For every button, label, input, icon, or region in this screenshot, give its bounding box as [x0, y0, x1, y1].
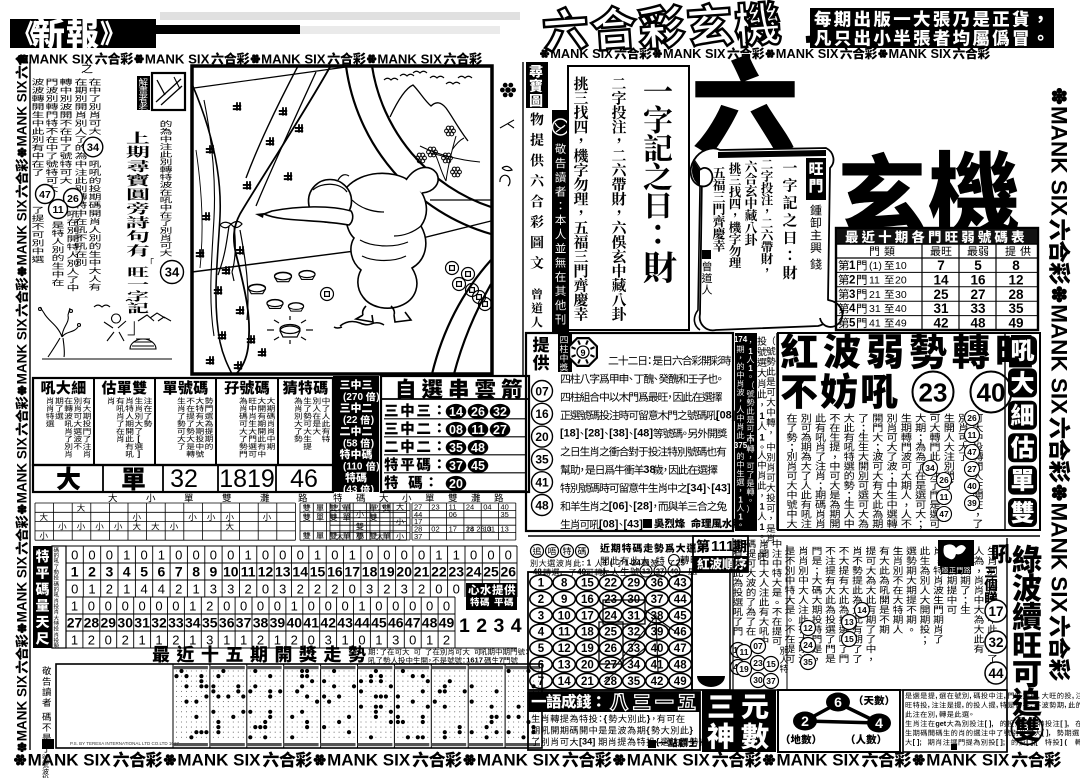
svg-text:8: 8 [192, 563, 200, 579]
svg-text:45: 45 [471, 459, 485, 473]
svg-text:40: 40 [967, 481, 977, 491]
svg-text:47: 47 [674, 643, 687, 655]
svg-text:}: } [647, 714, 651, 724]
svg-text:7: 7 [538, 676, 544, 688]
svg-text:3: 3 [366, 581, 373, 596]
svg-text:46: 46 [674, 627, 687, 639]
svg-text:10: 10 [223, 563, 239, 579]
svg-text:07: 07 [535, 384, 549, 398]
svg-text:1: 1 [223, 632, 230, 647]
svg-text:23: 23 [449, 563, 465, 579]
svg-text:,: , [1004, 691, 1006, 700]
svg-text:0: 0 [453, 581, 460, 596]
svg-text:1: 1 [71, 563, 79, 579]
svg-text:0: 0 [349, 581, 356, 596]
svg-text:0: 0 [308, 632, 315, 647]
svg-text:1: 1 [123, 547, 130, 562]
svg-text:9: 9 [580, 348, 585, 358]
svg-text:MANK SIX: MANK SIX [777, 751, 861, 770]
svg-text:,: , [928, 700, 930, 709]
svg-text:19: 19 [739, 664, 749, 674]
svg-text:1819: 1819 [219, 465, 275, 493]
svg-text:[28]: [28] [633, 501, 653, 513]
svg-text:0: 0 [308, 598, 315, 613]
svg-text:MANK SIX: MANK SIX [627, 751, 711, 770]
svg-text:38: 38 [253, 614, 269, 630]
svg-text:0: 0 [470, 547, 477, 562]
svg-text:}: } [689, 725, 693, 735]
svg-text:46: 46 [290, 465, 318, 493]
svg-text:37: 37 [766, 676, 776, 686]
svg-text:1: 1 [155, 632, 162, 647]
svg-text:P.S. BY TERESA INTERNATIONAL: P.S. BY TERESA INTERNATIONAL LTD CO.LTD … [70, 741, 179, 746]
svg-text:31: 31 [869, 303, 881, 315]
svg-text:,: , [935, 710, 937, 719]
svg-text:24: 24 [803, 640, 813, 650]
svg-text:32: 32 [170, 465, 198, 493]
svg-text:47: 47 [939, 509, 949, 519]
svg-text:0: 0 [138, 598, 145, 613]
svg-text:11: 11 [869, 274, 880, 286]
svg-text:32: 32 [151, 614, 167, 630]
svg-text:,: , [962, 700, 964, 709]
svg-text:0: 0 [274, 598, 281, 613]
svg-text:0: 0 [122, 598, 129, 613]
svg-text:3: 3 [849, 289, 855, 301]
svg-text:1: 1 [759, 432, 765, 443]
svg-text:8: 8 [561, 578, 568, 590]
svg-text:1: 1 [748, 347, 753, 356]
svg-text:41: 41 [869, 318, 881, 330]
svg-text:36: 36 [219, 614, 235, 630]
svg-text:35: 35 [803, 657, 813, 667]
svg-text:4: 4 [538, 627, 545, 639]
svg-text:2: 2 [538, 594, 544, 606]
svg-text:0: 0 [418, 547, 425, 562]
svg-text:0: 0 [210, 547, 217, 562]
svg-text:1: 1 [158, 547, 165, 562]
svg-text:,: , [1030, 700, 1032, 709]
svg-text:,: , [1064, 700, 1066, 709]
svg-text:07: 07 [753, 641, 763, 651]
svg-text:0: 0 [375, 598, 382, 613]
svg-text:40: 40 [895, 303, 907, 315]
svg-text:0: 0 [257, 598, 264, 613]
svg-text:MANK SIX: MANK SIX [15, 80, 30, 146]
svg-text:MANK SIX: MANK SIX [477, 751, 561, 770]
svg-text:23: 23 [753, 658, 763, 668]
svg-text:: 1: : 1 [582, 559, 592, 568]
svg-text:34: 34 [165, 265, 180, 280]
svg-text:MANK SIX: MANK SIX [663, 46, 726, 61]
svg-text:1: 1 [849, 260, 856, 272]
svg-text:26: 26 [939, 475, 949, 485]
svg-text:21: 21 [414, 563, 430, 579]
svg-text:(270: (270 [343, 392, 363, 403]
svg-text:30: 30 [895, 289, 907, 301]
svg-text:29: 29 [101, 614, 117, 630]
svg-text:get: get [935, 719, 946, 728]
svg-text:,: , [996, 700, 998, 709]
svg-text:0: 0 [227, 547, 234, 562]
svg-text:MANK SIX: MANK SIX [15, 437, 30, 503]
svg-text:3: 3 [227, 581, 234, 596]
svg-text:1: 1 [748, 364, 753, 373]
svg-text:48: 48 [970, 316, 986, 331]
svg-text:0: 0 [155, 598, 162, 613]
svg-text:25: 25 [483, 563, 499, 579]
svg-text:MANK SIX: MANK SIX [926, 751, 1010, 770]
svg-text:1: 1 [71, 632, 78, 647]
svg-text:0: 0 [88, 598, 95, 613]
svg-text:7: 7 [175, 563, 183, 579]
svg-text:[28]: [28] [585, 428, 605, 440]
svg-text:48: 48 [422, 614, 438, 630]
svg-text:,: , [970, 691, 972, 700]
svg-text:(22: (22 [343, 415, 358, 426]
svg-text:23: 23 [431, 502, 439, 511]
svg-text:9: 9 [561, 594, 567, 606]
svg-text:{: { [656, 737, 660, 747]
svg-text:5: 5 [140, 563, 148, 579]
svg-text:11: 11 [471, 423, 484, 437]
svg-text:1 2 3 4: 1 2 3 4 [459, 615, 522, 637]
svg-text:49: 49 [439, 614, 455, 630]
svg-text:0: 0 [392, 598, 399, 613]
svg-text:0: 0 [435, 581, 442, 596]
svg-text:46: 46 [388, 614, 404, 630]
svg-text:43: 43 [337, 614, 353, 630]
svg-text:37: 37 [236, 614, 252, 630]
svg-text:42: 42 [933, 316, 948, 331]
svg-text:18: 18 [362, 563, 378, 579]
svg-text:2: 2 [331, 581, 338, 596]
svg-text:[43]: [43] [711, 482, 731, 494]
svg-text:28: 28 [604, 676, 617, 688]
svg-text:17: 17 [449, 525, 457, 534]
svg-text:35: 35 [535, 453, 549, 467]
svg-text:0: 0 [297, 547, 304, 562]
svg-text:27: 27 [970, 287, 985, 302]
svg-text:3: 3 [401, 581, 408, 596]
svg-text:11: 11 [52, 204, 63, 216]
svg-text:0: 0 [140, 547, 147, 562]
svg-text:2: 2 [443, 632, 450, 647]
svg-text:31: 31 [933, 301, 949, 316]
svg-text:37: 37 [414, 532, 422, 541]
svg-text:0: 0 [279, 547, 286, 562]
svg-text:5: 5 [849, 318, 856, 330]
svg-text:4: 4 [158, 581, 165, 596]
svg-text:49: 49 [895, 318, 907, 330]
svg-text:[ ],: [ ], [985, 719, 994, 728]
svg-text:MANK SIX: MANK SIX [1047, 106, 1072, 216]
svg-text:0: 0 [105, 632, 112, 647]
svg-text:0: 0 [505, 547, 512, 562]
svg-text:2: 2 [849, 274, 855, 286]
svg-text:1: 1 [314, 547, 321, 562]
svg-text:0: 0 [88, 547, 95, 562]
svg-text:0: 0 [240, 598, 247, 613]
svg-text:,: , [935, 691, 937, 700]
svg-text:MANK SIX: MANK SIX [776, 46, 839, 61]
svg-text:[34]: [34] [687, 482, 707, 494]
svg-text:20: 20 [581, 660, 594, 672]
svg-text:1: 1 [189, 632, 196, 647]
svg-text:(43: (43 [343, 485, 358, 496]
svg-text:4: 4 [123, 563, 131, 579]
svg-text:18: 18 [581, 627, 594, 639]
svg-text:04: 04 [483, 502, 491, 511]
svg-text:34: 34 [87, 142, 100, 154]
svg-text:,: , [1038, 691, 1040, 700]
svg-text:26: 26 [67, 193, 79, 205]
svg-text:30: 30 [117, 614, 133, 630]
svg-text:35: 35 [501, 510, 509, 519]
svg-text:1: 1 [738, 513, 743, 522]
svg-text:17: 17 [581, 610, 594, 622]
svg-text:1: 1 [538, 578, 545, 590]
svg-text:): ) [376, 392, 379, 403]
svg-text:25: 25 [604, 627, 617, 639]
svg-text:[43]: [43] [624, 519, 644, 531]
svg-text:1: 1 [358, 598, 365, 613]
svg-text:27: 27 [67, 614, 83, 630]
svg-text:11: 11 [241, 563, 256, 579]
svg-text:2: 2 [88, 563, 96, 579]
svg-text:22: 22 [431, 563, 447, 579]
svg-text:MANK SIX: MANK SIX [15, 675, 30, 741]
svg-text:[: [ [137, 434, 140, 444]
svg-text:40: 40 [977, 377, 1006, 407]
svg-text:0: 0 [409, 598, 416, 613]
svg-text:(110: (110 [343, 462, 363, 473]
svg-text:MANK SIX: MANK SIX [261, 51, 326, 66]
svg-text:33: 33 [168, 614, 184, 630]
svg-text:15: 15 [844, 634, 854, 644]
svg-text:1: 1 [349, 547, 356, 562]
svg-text:13: 13 [275, 563, 291, 579]
svg-text:28: 28 [1008, 287, 1024, 302]
svg-text:08: 08 [449, 423, 463, 437]
svg-text:44: 44 [354, 614, 370, 630]
svg-text:14: 14 [558, 676, 571, 688]
svg-text:): ) [371, 438, 374, 449]
svg-text:42: 42 [320, 614, 336, 630]
svg-text:{: { [604, 714, 608, 724]
svg-text:25: 25 [933, 287, 949, 302]
svg-text:31: 31 [134, 614, 150, 630]
svg-text:{: { [646, 725, 650, 735]
svg-text:[ ];: [ ]; [913, 737, 922, 746]
svg-text:6: 6 [834, 694, 842, 710]
svg-text:40: 40 [287, 614, 303, 630]
svg-text:[ ],: [ ], [1022, 719, 1031, 728]
svg-text:17: 17 [344, 563, 360, 579]
svg-text:1: 1 [71, 598, 78, 613]
svg-text:16: 16 [970, 272, 986, 287]
svg-text:5: 5 [538, 643, 545, 655]
svg-text:20: 20 [449, 477, 463, 491]
svg-text:[48]: [48] [634, 428, 654, 440]
svg-text:30: 30 [753, 675, 763, 685]
svg-text:[06]: [06] [609, 501, 629, 513]
svg-text:1: 1 [375, 632, 382, 647]
svg-text:42: 42 [651, 676, 664, 688]
svg-text:5: 5 [974, 258, 982, 273]
svg-text:35: 35 [449, 441, 463, 455]
svg-text:12: 12 [258, 563, 274, 579]
svg-text:2: 2 [297, 581, 304, 596]
svg-text:6: 6 [158, 563, 166, 579]
svg-text:[ ],: [ ], [1042, 728, 1051, 737]
svg-text:28: 28 [84, 614, 100, 630]
svg-text:4: 4 [849, 303, 856, 315]
svg-text:35: 35 [1008, 301, 1024, 316]
svg-text:11: 11 [968, 430, 977, 440]
svg-text:12: 12 [1008, 272, 1023, 287]
svg-text:0: 0 [192, 547, 199, 562]
svg-text:MANK SIX: MANK SIX [1047, 304, 1072, 414]
svg-text:1: 1 [759, 411, 765, 422]
svg-text:0: 0 [71, 581, 78, 596]
svg-text:): ) [376, 462, 379, 473]
svg-text:13: 13 [558, 660, 571, 672]
svg-text:11: 11 [940, 492, 949, 502]
svg-text:MANK SIX: MANK SIX [145, 51, 210, 66]
svg-text:47: 47 [405, 614, 421, 630]
svg-text:[ ];[: [ ];[ [1026, 737, 1038, 746]
svg-text:0: 0 [175, 547, 182, 562]
svg-text:41: 41 [535, 476, 549, 490]
svg-text:0: 0 [331, 547, 338, 562]
svg-text:MANK SIX: MANK SIX [327, 751, 411, 770]
svg-text:35: 35 [627, 676, 640, 688]
svg-text:26: 26 [604, 643, 617, 655]
svg-text:13: 13 [501, 525, 509, 534]
svg-text:8: 8 [1012, 258, 1020, 273]
svg-text:29: 29 [627, 578, 640, 590]
svg-text:37: 37 [449, 459, 463, 473]
svg-text:1: 1 [189, 598, 196, 613]
svg-text:33: 33 [970, 301, 986, 316]
svg-text:] (: ] ( [1060, 737, 1067, 746]
svg-text:2: 2 [175, 581, 182, 596]
svg-text:MANK SIX: MANK SIX [1047, 503, 1072, 613]
svg-text:1: 1 [759, 522, 764, 532]
svg-text:9: 9 [210, 563, 218, 579]
svg-text:3: 3 [392, 632, 399, 647]
svg-text:19: 19 [379, 563, 395, 579]
svg-text:0: 0 [105, 598, 112, 613]
svg-text:45: 45 [674, 610, 687, 622]
svg-text:26: 26 [967, 413, 977, 423]
svg-text:26: 26 [471, 405, 485, 419]
svg-text:4: 4 [140, 581, 147, 596]
svg-text:2: 2 [206, 598, 213, 613]
svg-text:0: 0 [401, 547, 408, 562]
svg-text:1: 1 [341, 632, 348, 647]
svg-text:0: 0 [409, 632, 416, 647]
svg-text:20: 20 [396, 563, 412, 579]
svg-text:34: 34 [185, 614, 201, 630]
svg-text:12: 12 [803, 623, 813, 633]
svg-text:36: 36 [651, 578, 664, 590]
svg-text:14: 14 [292, 563, 308, 579]
svg-text:1: 1 [453, 547, 460, 562]
svg-text:MANK SIX: MANK SIX [28, 751, 112, 770]
svg-text:MANK SIX: MANK SIX [889, 46, 952, 61]
svg-text:0: 0 [262, 581, 269, 596]
svg-text:[ ],: [ ], [1060, 719, 1069, 728]
svg-text:32: 32 [493, 405, 507, 419]
svg-text:174: 174 [734, 335, 748, 344]
svg-text:39: 39 [270, 614, 286, 630]
svg-text:1: 1 [192, 581, 199, 596]
svg-text:0: 0 [172, 598, 179, 613]
svg-text:27: 27 [967, 464, 977, 474]
svg-text:2: 2 [172, 632, 179, 647]
svg-text:0: 0 [366, 547, 373, 562]
svg-text:47: 47 [39, 189, 51, 201]
svg-text:16: 16 [327, 563, 343, 579]
svg-text:49: 49 [674, 676, 687, 688]
svg-text:12: 12 [558, 643, 571, 655]
svg-text:10: 10 [558, 610, 571, 622]
svg-text:2: 2 [122, 632, 129, 647]
svg-text:2: 2 [257, 632, 264, 647]
svg-text:3: 3 [106, 563, 114, 579]
svg-text:2: 2 [244, 581, 251, 596]
svg-text:0: 0 [358, 632, 365, 647]
svg-text:0: 0 [262, 547, 269, 562]
svg-text:111: 111 [711, 538, 734, 555]
svg-text:11: 11 [740, 647, 749, 657]
svg-text:1: 1 [138, 632, 145, 647]
svg-text:): ) [371, 485, 374, 496]
svg-text:43: 43 [674, 578, 687, 590]
svg-text:23: 23 [919, 377, 948, 407]
svg-text:10: 10 [895, 260, 907, 272]
svg-text:18 26 01: 18 26 01 [466, 525, 495, 534]
svg-text:375: 375 [734, 441, 748, 450]
svg-text:17: 17 [988, 604, 1003, 619]
svg-text:3: 3 [538, 610, 544, 622]
svg-text:48: 48 [674, 660, 687, 672]
svg-text:22: 22 [604, 578, 617, 590]
svg-text:48: 48 [471, 441, 485, 455]
svg-text:15: 15 [310, 563, 326, 579]
svg-text:27: 27 [604, 660, 617, 672]
svg-text:0: 0 [383, 547, 390, 562]
svg-text:4: 4 [875, 715, 883, 731]
svg-text:3: 3 [279, 581, 286, 596]
svg-text:14: 14 [857, 605, 867, 615]
svg-text:26: 26 [501, 563, 517, 579]
svg-text:39: 39 [967, 498, 977, 508]
svg-text:47: 47 [967, 447, 977, 457]
svg-text:2: 2 [801, 713, 809, 729]
svg-text:0: 0 [443, 598, 450, 613]
svg-text:]: ] [137, 449, 140, 459]
svg-text:7: 7 [937, 258, 945, 273]
svg-text:21: 21 [581, 676, 594, 688]
svg-text:24: 24 [466, 502, 474, 511]
svg-text:0: 0 [325, 598, 332, 613]
svg-text:15: 15 [581, 578, 594, 590]
svg-text:20: 20 [895, 274, 907, 286]
svg-text:[34]: [34] [579, 737, 595, 747]
